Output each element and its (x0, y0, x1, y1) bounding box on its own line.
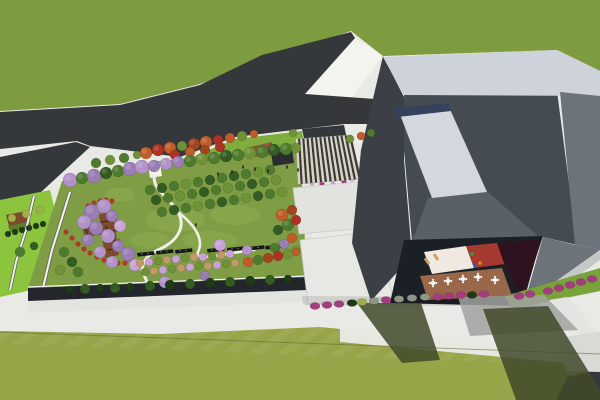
tree (289, 129, 297, 137)
cafe-chair (462, 275, 464, 277)
cafe-chair (477, 279, 479, 281)
cafe-table (431, 281, 436, 286)
aerial-render-canvas (0, 0, 600, 400)
apron-shrub (587, 276, 597, 283)
tree-highlight (186, 157, 191, 162)
apron-shrub (347, 300, 357, 307)
tree (273, 225, 283, 235)
pedestrian (254, 167, 256, 170)
cafe-chair (432, 285, 434, 287)
tree (213, 261, 221, 269)
apron-shrub (310, 303, 320, 310)
tree-highlight (137, 162, 143, 168)
cafe-chair (491, 279, 493, 281)
memorial-text-mark (141, 253, 142, 254)
tree (259, 177, 269, 187)
cafe-chair (497, 279, 499, 281)
pedestrian (267, 169, 269, 172)
tree (177, 264, 185, 272)
tree (241, 169, 251, 179)
cafe-chair (444, 280, 446, 282)
tree (222, 260, 230, 268)
tree (59, 247, 69, 257)
tree-highlight (234, 151, 239, 156)
tree (105, 155, 115, 165)
tree-highlight (222, 152, 227, 157)
tree (5, 231, 11, 237)
cafe-chair (494, 282, 496, 284)
apron-shrub (369, 298, 379, 305)
cafe-chair (447, 283, 449, 285)
pedestrian (286, 165, 288, 168)
tree-highlight (166, 144, 171, 149)
pedestrian (242, 165, 244, 168)
tree-highlight (210, 154, 215, 159)
cafe-chair (435, 282, 437, 284)
tree-highlight (142, 149, 147, 154)
tree (225, 133, 235, 143)
tree (357, 132, 365, 140)
tree (225, 277, 235, 287)
cafe-chair (474, 276, 476, 278)
tree-highlight (246, 149, 251, 154)
apron-shrub (525, 291, 535, 298)
tree (195, 262, 203, 270)
tree-highlight (270, 146, 275, 151)
cafe-chair (477, 273, 479, 275)
tree (159, 266, 167, 274)
tree (367, 129, 375, 137)
lawn-patch (210, 205, 260, 225)
tree (291, 143, 301, 153)
tree (241, 193, 251, 203)
tree (163, 193, 173, 203)
cafe-chair (429, 282, 431, 284)
apron-shrub (357, 299, 367, 306)
tree (169, 181, 179, 191)
tree (265, 165, 275, 175)
tree (165, 280, 175, 290)
tree (265, 275, 275, 285)
apron-shrub (467, 292, 477, 299)
tree (15, 247, 25, 257)
tree-highlight (102, 169, 107, 174)
tree (141, 268, 149, 276)
tree (199, 187, 209, 197)
tree (12, 229, 18, 235)
tree (265, 189, 275, 199)
tree-highlight (154, 146, 159, 151)
tree-highlight (282, 145, 287, 150)
cafe-chair (465, 278, 467, 280)
tree (169, 205, 179, 215)
tree-highlight (91, 223, 97, 229)
tree (204, 262, 212, 270)
tree (67, 257, 77, 267)
memorial-text-mark (179, 250, 180, 251)
tree (243, 257, 253, 267)
tree (185, 279, 195, 289)
tree (186, 263, 194, 271)
apron-shrub (394, 296, 404, 303)
tree (291, 215, 301, 225)
tree (223, 183, 233, 193)
tree (217, 197, 227, 207)
tree (283, 249, 293, 259)
tree (40, 221, 46, 227)
tree-highlight (84, 236, 89, 241)
tree (26, 225, 32, 231)
tree-highlight (125, 164, 131, 170)
tree (226, 250, 234, 258)
tree (193, 201, 203, 211)
tree (237, 131, 247, 141)
tree (136, 259, 144, 267)
memorial-text-mark (237, 248, 238, 249)
tree-highlight (114, 242, 119, 247)
tree (168, 265, 176, 273)
tree (150, 267, 158, 275)
tree (287, 205, 297, 215)
tree-highlight (96, 248, 101, 253)
apron-shrub (554, 285, 564, 292)
tree (231, 259, 239, 267)
red-flower-bed (81, 246, 86, 251)
courtyard-person (478, 261, 481, 264)
memorial-text-mark (231, 248, 232, 249)
tree (145, 281, 155, 291)
apron-shrub (576, 279, 586, 286)
cafe-chair (494, 276, 496, 278)
tree-highlight (116, 222, 121, 227)
building-parapet-top (383, 50, 600, 96)
tree (30, 242, 38, 250)
tree (242, 245, 252, 255)
apron-shrub (322, 302, 332, 309)
tree (181, 254, 189, 262)
lawn-patch (105, 188, 135, 202)
cafe-table (476, 275, 481, 280)
tree (119, 153, 129, 163)
apron-shrub (407, 295, 417, 302)
tree (253, 255, 263, 265)
tree (208, 252, 216, 260)
tree (36, 206, 44, 214)
tree (80, 284, 90, 294)
tree-highlight (99, 201, 105, 207)
tree (145, 185, 155, 195)
tree-highlight (278, 211, 283, 216)
tree (263, 253, 273, 263)
tree (157, 207, 167, 217)
tree (175, 191, 185, 201)
red-flower-bed (87, 250, 92, 255)
tree (157, 183, 167, 193)
tree-highlight (284, 221, 289, 226)
tree (292, 248, 300, 256)
tree-highlight (202, 138, 207, 143)
tree (181, 179, 191, 189)
tree (211, 185, 221, 195)
tree (205, 278, 215, 288)
tree (245, 276, 255, 286)
tree (250, 130, 258, 138)
tree (187, 189, 197, 199)
tree (110, 283, 120, 293)
tree (271, 175, 281, 185)
tree (235, 181, 245, 191)
tree-highlight (78, 174, 83, 179)
memorial-text-mark (147, 253, 148, 254)
apron-shrub (433, 294, 443, 301)
apron-shrub (334, 301, 344, 308)
tree (346, 135, 354, 143)
tree (96, 284, 104, 292)
tree (133, 151, 141, 159)
tree-highlight (131, 261, 136, 266)
cafe-chair (450, 280, 452, 282)
tree (279, 239, 289, 249)
memorial-text-mark (211, 249, 212, 250)
tree (284, 275, 292, 283)
red-flower-bed (63, 229, 68, 234)
tree (229, 171, 239, 181)
memorial-text-mark (160, 251, 161, 252)
tree (73, 267, 83, 277)
apron-shrub (479, 291, 489, 298)
memorial-text-mark (185, 250, 186, 251)
pedestrian (195, 223, 197, 226)
courtyard-person (470, 252, 473, 255)
lawn-patch (182, 231, 238, 249)
tree-highlight (150, 162, 155, 167)
tree-highlight (108, 212, 113, 217)
apron-shrub (543, 288, 553, 295)
tree (273, 251, 283, 261)
apron-shrub (514, 293, 524, 300)
tree (277, 187, 287, 197)
apron-shrub (420, 294, 430, 301)
cafe-chair (459, 278, 461, 280)
red-flower-bed (122, 260, 127, 265)
tree (193, 177, 203, 187)
courtyard-person (475, 256, 478, 259)
memorial-text-mark (166, 251, 167, 252)
tree (126, 283, 134, 291)
tree-highlight (114, 167, 119, 172)
tree (33, 223, 39, 229)
cafe-table (493, 278, 498, 283)
pedestrian (297, 168, 299, 171)
tree-highlight (123, 249, 129, 255)
red-flower-bed (75, 241, 80, 246)
pedestrian (217, 172, 219, 175)
apron-shrub (444, 293, 454, 300)
pedestrian (231, 170, 233, 173)
memorial-text-mark (257, 247, 258, 248)
tree (247, 179, 257, 189)
tree (229, 195, 239, 205)
apron-shrub (381, 297, 391, 304)
tree (154, 257, 162, 265)
tree-highlight (108, 258, 113, 263)
cafe-chair (447, 277, 449, 279)
cafe-table (461, 277, 466, 282)
tree-highlight (190, 140, 195, 145)
tree (55, 265, 65, 275)
tree (163, 256, 171, 264)
tree (145, 258, 153, 266)
tree-highlight (162, 160, 167, 165)
tree-highlight (198, 155, 203, 160)
tree-highlight (103, 231, 109, 237)
red-flower-bed (69, 235, 74, 240)
tree (205, 175, 215, 185)
tree-highlight (86, 206, 93, 213)
tree-highlight (258, 148, 263, 153)
courtyard-person (473, 264, 476, 267)
tree (217, 251, 225, 259)
tree-highlight (89, 171, 95, 177)
tree (181, 203, 191, 213)
apron-shrub (456, 292, 466, 299)
tree-highlight (79, 217, 85, 223)
cafe-table (446, 279, 451, 284)
tree (199, 253, 207, 261)
tree-highlight (65, 175, 71, 181)
tree (151, 195, 161, 205)
cafe-chair (480, 276, 482, 278)
cafe-chair (432, 279, 434, 281)
tree (91, 158, 101, 168)
cafe-chair (462, 281, 464, 283)
tree (8, 214, 16, 222)
tree (22, 210, 30, 218)
tree (205, 199, 215, 209)
tree (190, 253, 198, 261)
tree (19, 227, 25, 233)
architectural-render (0, 0, 600, 400)
tree (172, 255, 180, 263)
tree-highlight (216, 241, 221, 246)
tree (253, 191, 263, 201)
apron-shrub (565, 282, 575, 289)
tree (66, 286, 74, 294)
tree-highlight (174, 158, 179, 163)
tree-highlight (161, 278, 166, 283)
